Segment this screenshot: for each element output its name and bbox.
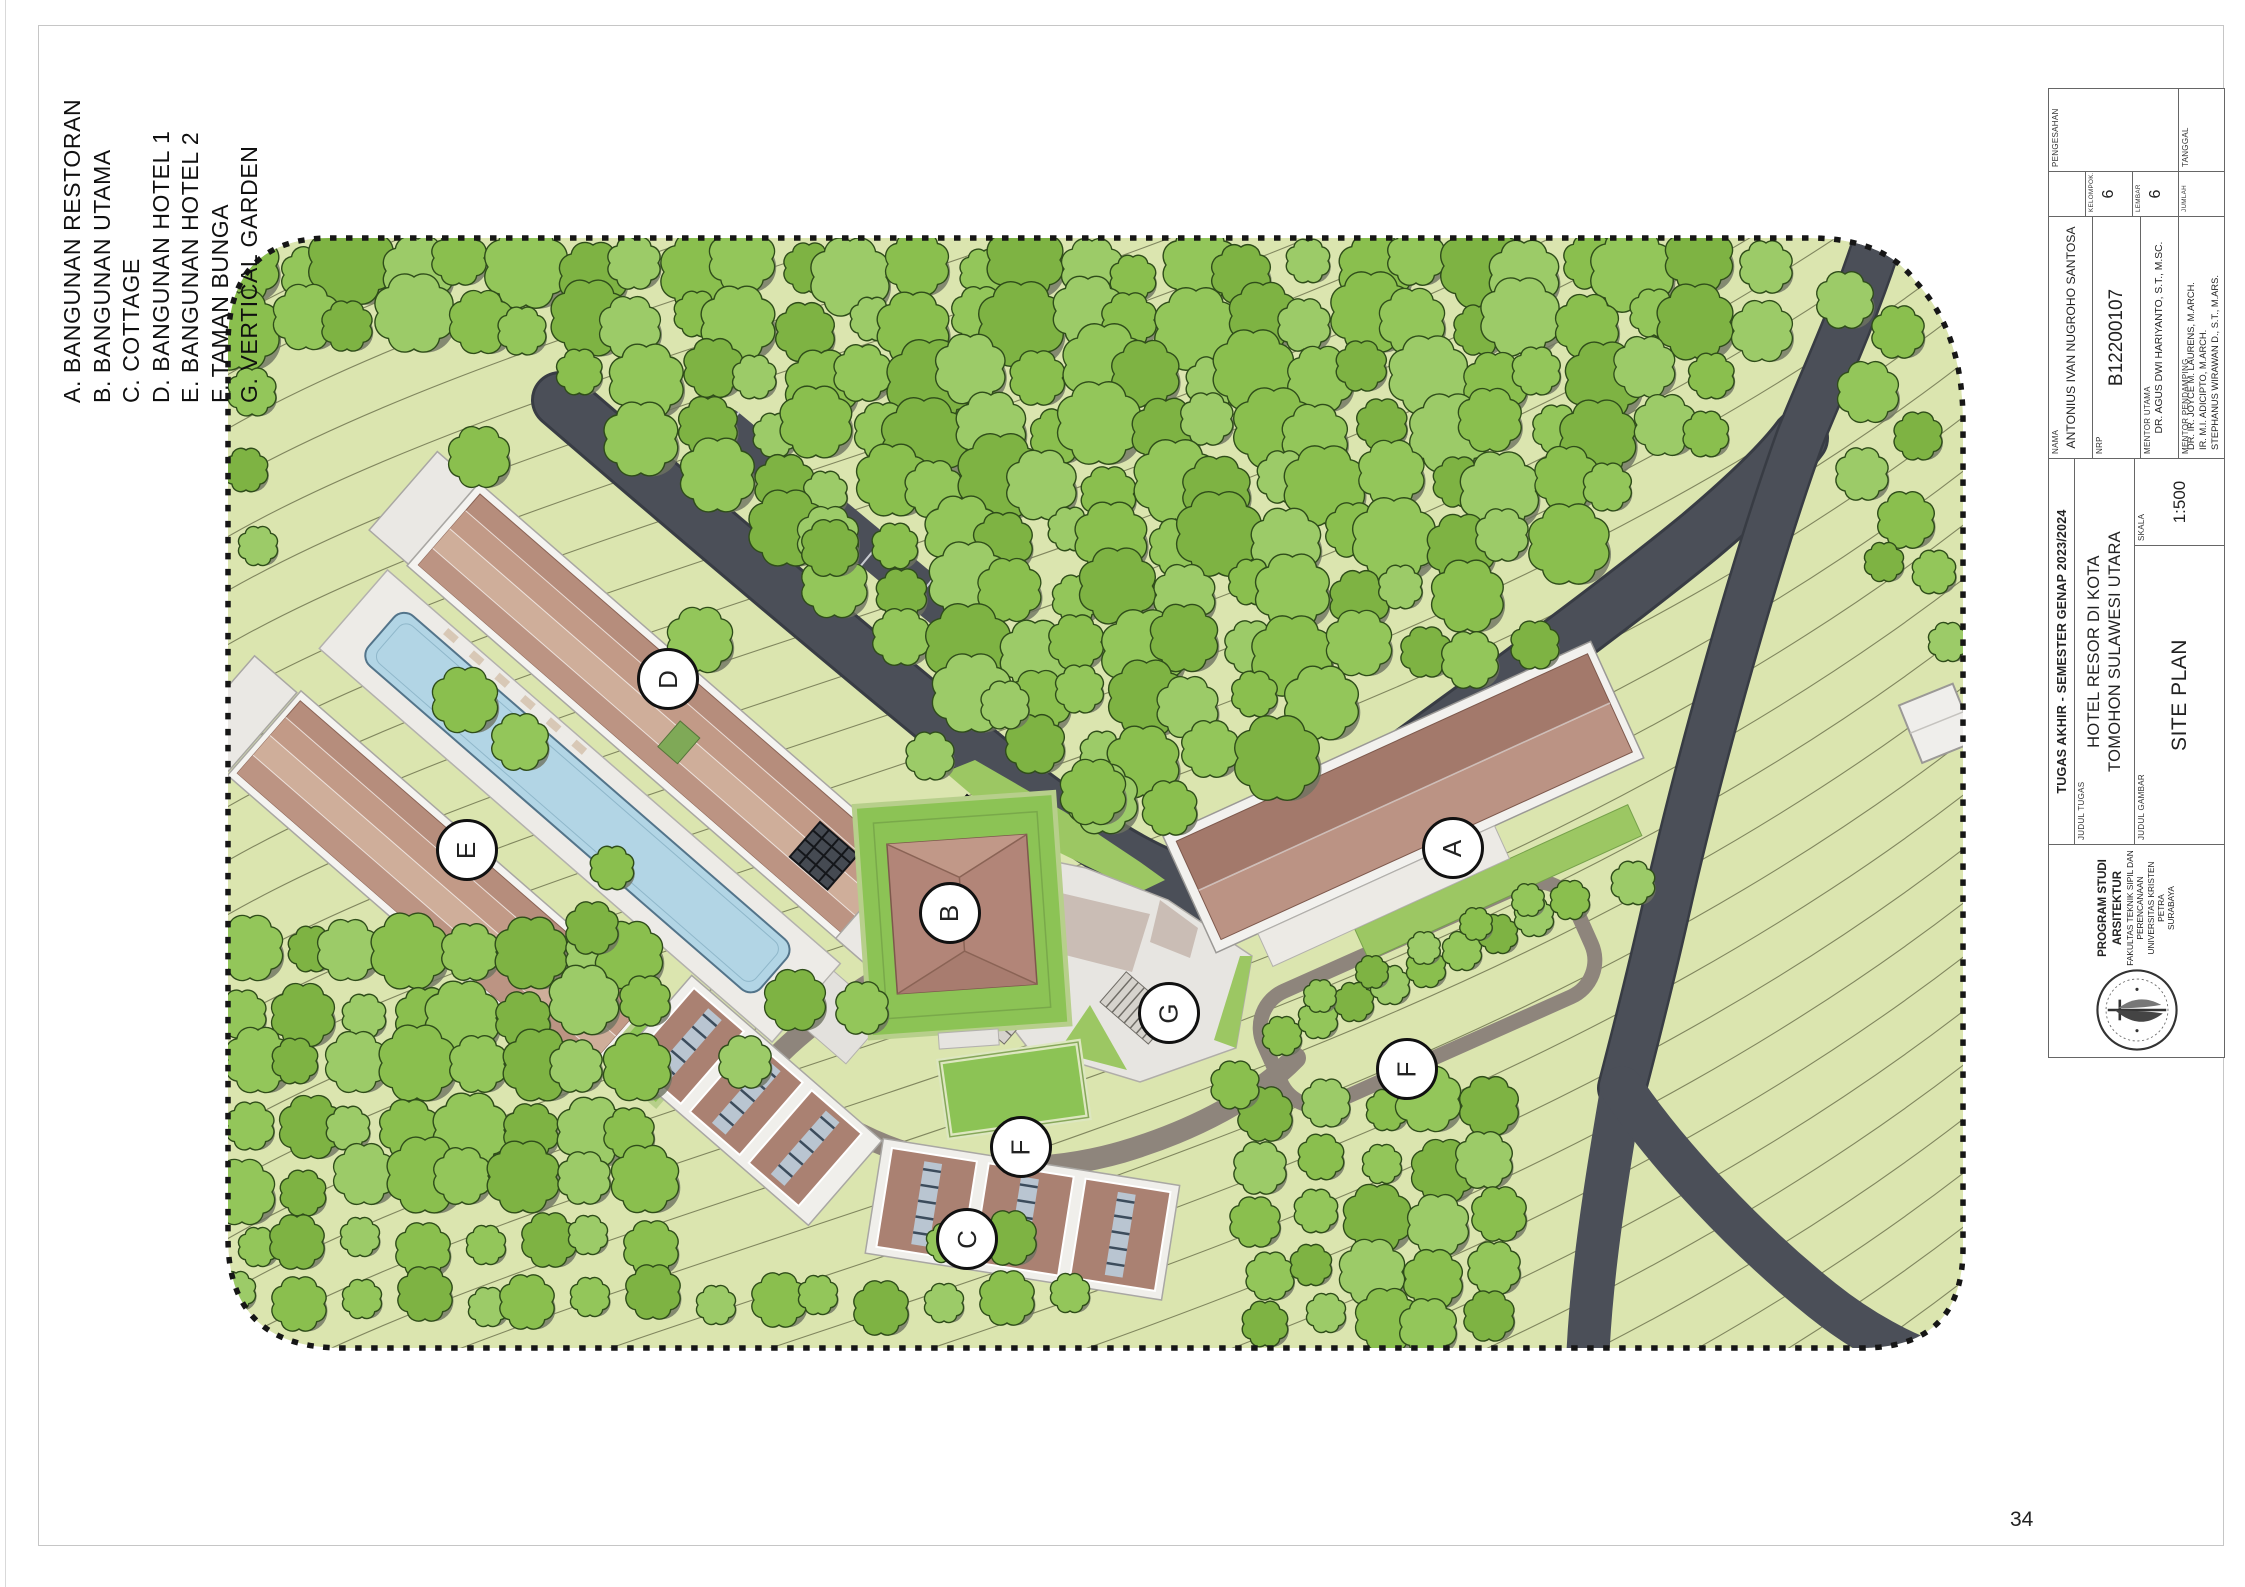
legend-item-b: B. BANGUNAN UTAMA — [88, 31, 118, 403]
faculty-name: FAKULTAS TEKNIK SIPIL DAN PERENCANAAN — [2125, 849, 2146, 967]
drawing-sheet: { "page": { "number": "34" }, "legend": … — [0, 0, 2245, 1587]
mentor-utama-cell: MENTOR UTAMA DR. AGUS DWI HARIYANTO, S.T… — [2141, 217, 2179, 458]
lembar-cell: LEMBAR 6 — [2133, 172, 2179, 216]
title-block-institution: PROGRAM STUDI ARSITEKTUR FAKULTAS TEKNIK… — [2049, 844, 2224, 1057]
judul-tugas-cell: JUDUL TUGAS HOTEL RESOR DI KOTA TOMOHON … — [2075, 459, 2135, 844]
mentor-pendamping-cell: MENTOR PENDAMPING DR. IR. JOYCE M. LAURE… — [2179, 217, 2224, 458]
main-mentor-name: DR. AGUS DWI HARIYANTO, S.T., M.SC. — [2154, 242, 2165, 434]
judul-gambar-cell: JUDUL GAMBAR SITE PLAN — [2135, 545, 2224, 844]
marker-building-a: A — [1422, 817, 1484, 879]
petra-university-seal-icon — [2094, 967, 2180, 1053]
legend-item-c: C. COTTAGE — [117, 31, 147, 403]
skala-cell: SKALA 1:500 — [2135, 459, 2224, 545]
jumlah-cell: JUMLAH — [2179, 172, 2224, 216]
program-name: PROGRAM STUDI ARSITEKTUR — [2096, 849, 2125, 967]
marker-hotel-e: E — [436, 819, 498, 881]
tanggal-cell: TANGGAL — [2179, 89, 2224, 171]
page-number: 34 — [2010, 1508, 2033, 1532]
marker-building-b: B — [919, 882, 981, 944]
student-name: ANTONIUS IVAN NUGROHO SANTOSA — [2064, 226, 2078, 448]
legend-item-g: G. VERTICAL GARDEN — [235, 31, 265, 403]
legend-item-f: F. TAMAN BUNGA — [206, 31, 236, 403]
university-name: UNIVERSITAS KRISTEN PETRA — [2146, 849, 2167, 967]
marker-vertical-garden-g: G — [1138, 982, 1200, 1044]
city-name: SURABAYA — [2166, 849, 2176, 967]
skala-label: SKALA — [2137, 514, 2146, 541]
judul-tugas-label: JUDUL TUGAS — [2077, 782, 2086, 840]
legend: A. BANGUNAN RESTORAN B. BANGUNAN UTAMA C… — [58, 31, 276, 403]
project-title-line1: HOTEL RESOR DI KOTA — [2084, 555, 2105, 748]
marker-cottage-c: C — [936, 1208, 998, 1270]
spacer-cell — [2049, 172, 2086, 216]
judul-gambar-label: JUDUL GAMBAR — [2137, 774, 2146, 840]
marker-hotel-d: D — [637, 648, 699, 710]
nrp-cell: NRP B12200107 — [2093, 217, 2141, 458]
legend-item-a: A. BANGUNAN RESTORAN — [58, 31, 88, 403]
scale-value: 1:500 — [2170, 481, 2190, 524]
title-block-header: TUGAS AKHIR - SEMESTER GENAP 2023/2024 — [2049, 459, 2075, 844]
group-number: 6 — [2100, 190, 2118, 199]
legend-item-d: D. BANGUNAN HOTEL 1 — [147, 31, 177, 403]
drawing-title: SITE PLAN — [2168, 639, 2192, 751]
project-title-line2: TOMOHON SULAWESI UTARA — [2105, 531, 2126, 772]
kelompok-cell: KELOMPOK. 6 — [2086, 172, 2133, 216]
marker-taman-bunga-f1: F — [990, 1116, 1052, 1178]
nama-cell: NAMA ANTONIUS IVAN NUGROHO SANTOSA — [2049, 217, 2093, 458]
pengesahan-cell: PENGESAHAN — [2049, 89, 2179, 171]
co-mentor-2: IR. M.I. ADICIPTO, M.ARCH. — [2197, 330, 2209, 450]
sheet-number: 6 — [2147, 190, 2165, 199]
legend-item-e: E. BANGUNAN HOTEL 2 — [176, 31, 206, 403]
co-mentor-3: STEPHANUS WIRAWAN D., S.T., M.ARS. — [2209, 275, 2221, 450]
title-block: PROGRAM STUDI ARSITEKTUR FAKULTAS TEKNIK… — [2048, 88, 2225, 1058]
marker-taman-bunga-f2: F — [1376, 1038, 1438, 1100]
student-id: B12200107 — [2106, 289, 2128, 386]
site-plan-drawing — [0, 0, 2245, 1587]
